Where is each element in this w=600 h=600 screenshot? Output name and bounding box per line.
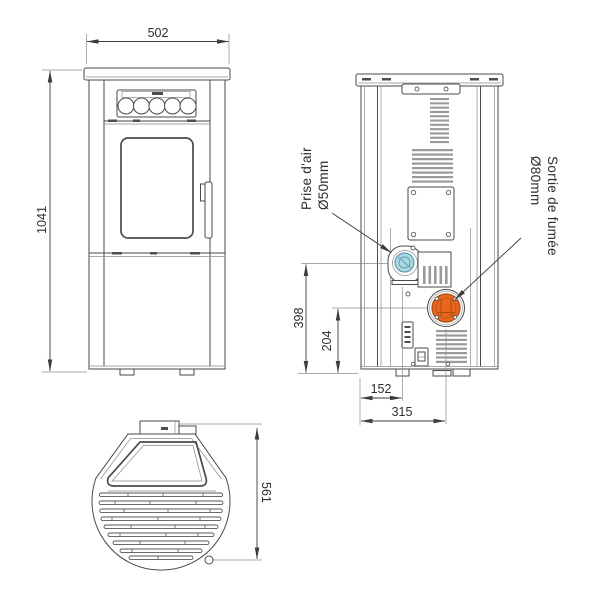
- back-foot-center: [433, 371, 451, 377]
- front-foot-right: [180, 369, 194, 375]
- dim-front-width: 502: [87, 26, 230, 64]
- top-view-knob: [205, 556, 213, 564]
- top-view: [92, 421, 230, 570]
- front-top-plate: [84, 68, 230, 80]
- top-view-grill: [99, 493, 223, 560]
- front-view: [84, 68, 230, 375]
- front-air-vent: [117, 90, 196, 117]
- dim-smoke-offset-text: 315: [392, 405, 413, 419]
- air-inlet-diameter: Ø50mm: [316, 160, 331, 210]
- drawing-canvas: 502 1041: [0, 0, 600, 600]
- dim-smoke-height-text: 204: [320, 331, 334, 352]
- top-view-flue-tab: [140, 421, 196, 434]
- stove-technical-drawing: 502 1041: [0, 0, 600, 600]
- dim-air-height-text: 398: [292, 308, 306, 329]
- back-view: [356, 74, 503, 376]
- dim-front-width-text: 502: [148, 26, 169, 40]
- back-terminal-strip: [402, 322, 413, 348]
- back-foot-right: [453, 369, 470, 376]
- top-view-hopper-lid: [108, 442, 207, 486]
- dim-front-height-text: 1041: [35, 206, 49, 234]
- back-vented-box: [418, 252, 451, 287]
- back-inspection-panel: [408, 187, 454, 240]
- dim-top-depth-text: 561: [259, 482, 273, 503]
- smoke-outlet-port: [428, 290, 465, 327]
- back-bracket: [402, 84, 460, 94]
- dim-top-depth: 561: [180, 424, 273, 560]
- air-inlet-label: Prise d'air: [299, 147, 314, 210]
- front-foot-left: [120, 369, 134, 375]
- dim-front-height: 1041: [35, 70, 87, 372]
- smoke-outlet-diameter: Ø80mm: [528, 156, 543, 206]
- back-power-switch: [415, 348, 428, 366]
- dim-air-offset-text: 152: [371, 382, 392, 396]
- smoke-outlet-label: Sortie de fumée: [545, 156, 560, 256]
